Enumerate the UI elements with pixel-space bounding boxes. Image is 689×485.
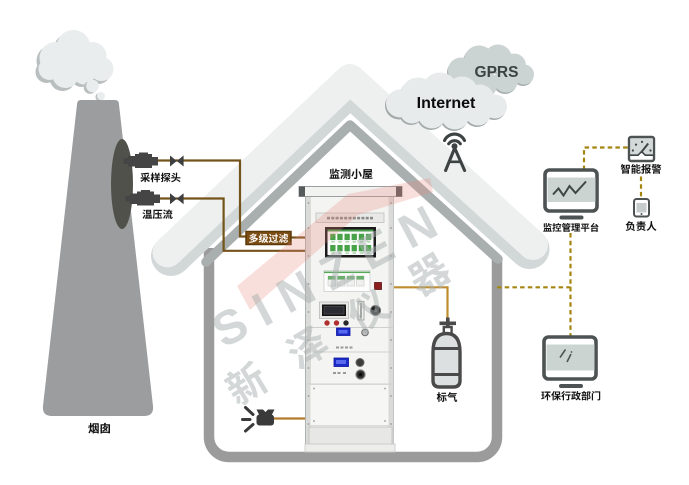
svg-text:Internet: Internet [417, 95, 476, 112]
svg-text:GPRS: GPRS [475, 64, 519, 81]
